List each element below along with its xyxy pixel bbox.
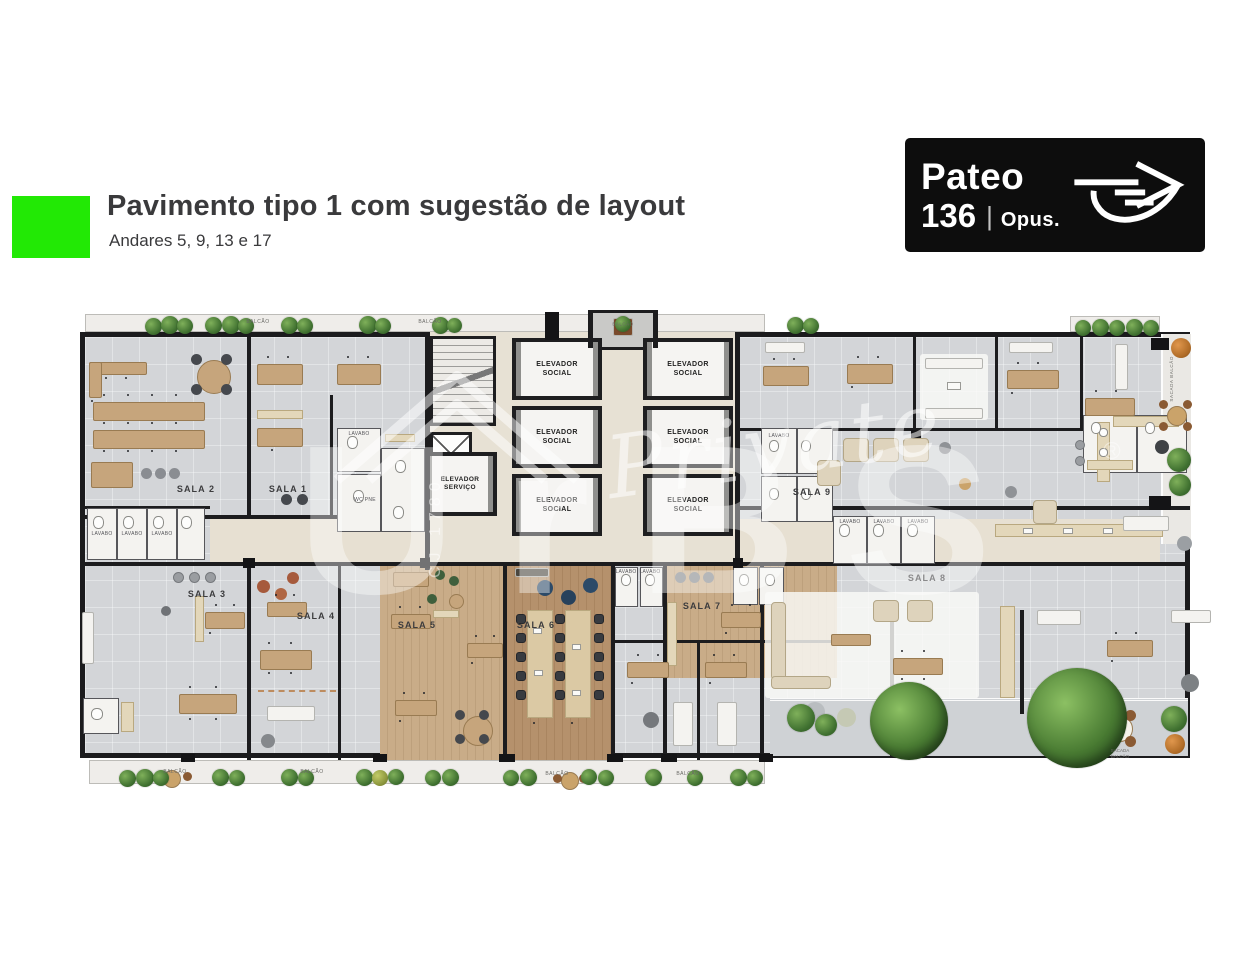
social-elevator-5: ELEVADOR SOCIAL — [643, 406, 733, 468]
desk — [93, 402, 205, 421]
plant — [1075, 320, 1091, 336]
office-chair — [209, 632, 211, 634]
round-table — [463, 716, 493, 746]
wall — [247, 566, 251, 760]
sofa — [771, 602, 786, 680]
room-label-sala-1: SALA 1 — [269, 484, 307, 494]
office-chair — [215, 718, 217, 720]
office-chair — [419, 606, 421, 608]
plant — [787, 317, 804, 334]
lavatory-label: LAVABO — [121, 531, 142, 537]
column — [911, 430, 921, 438]
column — [181, 754, 195, 762]
office-chair — [471, 662, 473, 664]
office-chair — [773, 358, 775, 360]
desk — [260, 650, 312, 670]
office-chair — [901, 650, 903, 652]
table-item — [1063, 528, 1073, 534]
office-chair — [516, 690, 526, 700]
bathroom-cell — [177, 508, 205, 560]
office-chair — [594, 671, 604, 681]
table-item — [947, 382, 961, 390]
office-chair — [571, 722, 573, 724]
pouf — [537, 580, 553, 596]
desk — [831, 634, 871, 646]
office-chair — [103, 422, 105, 424]
wall — [913, 337, 916, 431]
fixture — [801, 440, 811, 452]
office-chair — [103, 394, 105, 396]
office-chair — [516, 671, 526, 681]
column — [499, 754, 515, 762]
chair — [449, 576, 459, 586]
brand-name: Pateo — [921, 158, 1060, 195]
office-chair — [555, 614, 565, 624]
leaf-arrow-icon — [1071, 154, 1189, 236]
office-chair — [175, 422, 177, 424]
column — [243, 558, 255, 568]
office-chair — [1115, 632, 1117, 634]
office-chair — [657, 654, 659, 656]
floor-plan: ELEVADOR SERVIÇO ELEVADOR SOCIAL ELEVADO… — [75, 310, 1195, 790]
lavatory-label: LAVABO — [768, 433, 789, 439]
office-chair — [151, 394, 153, 396]
fixture — [395, 460, 406, 473]
office-chair — [127, 394, 129, 396]
fixture — [153, 516, 164, 529]
column — [420, 558, 430, 568]
wall — [503, 566, 507, 760]
room-label-sala-3: SALA 3 — [188, 589, 226, 599]
chair — [281, 494, 292, 505]
sofa — [771, 676, 831, 689]
office-chair — [267, 356, 269, 358]
elevator-label: ELEVADOR SOCIAL — [658, 496, 717, 514]
room-sala-6-floor — [507, 566, 611, 760]
office-chair — [233, 604, 235, 606]
chair — [455, 734, 465, 744]
table-item — [1023, 528, 1033, 534]
office-chair — [533, 722, 535, 724]
terrace-label-right: SACADA BALCÃO — [1169, 356, 1174, 402]
plant — [1161, 706, 1187, 732]
room-label-sala-2: SALA 2 — [177, 484, 215, 494]
chair — [1125, 736, 1136, 747]
chair — [479, 734, 489, 744]
wall — [330, 395, 333, 519]
plant — [372, 770, 388, 786]
plant — [1143, 320, 1159, 336]
room-label-sala-7: SALA 7 — [683, 601, 721, 611]
wall — [247, 337, 251, 519]
wall — [338, 566, 341, 760]
lavatory-label: LAVABO — [615, 569, 636, 575]
fixture — [91, 708, 103, 720]
office-chair — [1017, 362, 1019, 364]
plant — [136, 769, 154, 787]
office-chair — [857, 356, 859, 358]
brand-divider: | — [986, 203, 993, 229]
desk — [1007, 370, 1059, 389]
chair — [191, 354, 202, 365]
slide: Pavimento tipo 1 com sugestão de layout … — [0, 0, 1248, 960]
pouf — [561, 590, 576, 605]
plant — [442, 769, 459, 786]
cabinet — [82, 612, 94, 664]
room-label-sala-8: SALA 8 — [908, 573, 946, 583]
office-chair — [516, 652, 526, 662]
fixture — [765, 574, 775, 586]
desk — [763, 366, 809, 386]
cabinet — [1037, 610, 1081, 625]
accent-square — [12, 196, 90, 258]
plant — [281, 317, 298, 334]
office-chair — [555, 671, 565, 681]
counter — [257, 410, 303, 419]
plant — [1092, 319, 1109, 336]
tree — [870, 682, 948, 760]
fixture — [769, 488, 779, 500]
counter — [433, 610, 459, 618]
pouf — [261, 734, 275, 748]
office-chair — [731, 604, 733, 606]
terrace-label-bottom: SACADA BALCÃO — [1105, 748, 1135, 761]
office-chair — [175, 394, 177, 396]
bathroom-cell — [337, 474, 381, 532]
desk — [893, 658, 943, 675]
plant — [229, 770, 245, 786]
elevator-label: ELEVADOR SOCIAL — [527, 428, 586, 446]
pouf — [959, 478, 971, 490]
plant — [281, 769, 298, 786]
lavatory-label: LAVABO — [151, 531, 172, 537]
office-chair — [725, 632, 727, 634]
elevator-label: ELEVADOR SOCIAL — [527, 496, 586, 514]
stool — [205, 572, 216, 583]
office-chair — [423, 692, 425, 694]
cabinet — [1171, 610, 1211, 623]
plant — [730, 769, 747, 786]
column — [661, 754, 677, 762]
desk — [467, 643, 503, 658]
sofa — [843, 438, 869, 462]
table-item — [572, 644, 581, 650]
fixture — [873, 524, 884, 537]
fixture — [769, 440, 779, 452]
chair — [427, 594, 437, 604]
stairs — [430, 336, 496, 426]
office-chair — [594, 614, 604, 624]
sofa — [907, 600, 933, 622]
desk — [89, 362, 102, 398]
office-chair — [923, 678, 925, 680]
plant — [1126, 319, 1143, 336]
desk — [337, 364, 381, 385]
pouf — [141, 468, 152, 479]
wall — [425, 332, 430, 570]
chair — [1159, 422, 1168, 431]
desk — [179, 694, 237, 714]
counter — [667, 602, 677, 666]
desk — [1107, 640, 1153, 657]
plant — [1167, 448, 1191, 472]
service-elevator-label: ELEVADOR SERVIÇO — [436, 476, 484, 493]
column — [607, 754, 623, 762]
balcony-label: BALCÃO — [612, 322, 633, 327]
plant — [388, 769, 404, 785]
plant — [1169, 474, 1191, 496]
desk — [627, 662, 669, 678]
stool — [1075, 456, 1085, 466]
table-item — [1103, 528, 1113, 534]
plant — [212, 769, 229, 786]
office-chair — [268, 642, 270, 644]
social-elevator-6: ELEVADOR SOCIAL — [643, 474, 733, 536]
plant — [815, 714, 837, 736]
wall — [995, 337, 998, 431]
fixture — [1099, 448, 1108, 457]
office-chair — [637, 654, 639, 656]
office-chair — [399, 606, 401, 608]
column — [545, 312, 559, 340]
cabinet — [925, 408, 983, 419]
table-item — [534, 670, 543, 676]
pouf — [257, 580, 270, 593]
pouf — [643, 712, 659, 728]
pouf — [161, 606, 171, 616]
chair — [221, 384, 232, 395]
elevator-label: ELEVADOR SOCIAL — [658, 428, 717, 446]
desk — [205, 612, 245, 629]
table-item — [572, 690, 581, 696]
office-chair — [851, 386, 853, 388]
desk — [93, 430, 205, 449]
pouf — [583, 578, 598, 593]
office-chair — [594, 633, 604, 643]
pouf — [939, 442, 951, 454]
column — [1151, 338, 1169, 350]
chair — [1183, 422, 1192, 431]
plant — [520, 769, 537, 786]
office-chair — [1135, 632, 1137, 634]
office-chair — [749, 604, 751, 606]
plant — [803, 318, 819, 334]
fixture — [1145, 422, 1155, 434]
fixture — [347, 436, 358, 449]
pouf — [1005, 486, 1017, 498]
cabinet — [717, 702, 737, 746]
stool — [173, 572, 184, 583]
plant — [119, 770, 136, 787]
cabinet — [267, 706, 315, 721]
plant — [205, 317, 222, 334]
page-subtitle: Andares 5, 9, 13 e 17 — [109, 231, 272, 251]
column — [373, 754, 387, 762]
office-chair — [923, 650, 925, 652]
wc-pne-label: WC PNE — [354, 497, 376, 503]
lavatory-label: LAVABO — [639, 569, 660, 575]
column — [759, 754, 773, 762]
column — [733, 558, 743, 568]
stool — [189, 572, 200, 583]
office-chair — [793, 358, 795, 360]
cabinet — [925, 358, 983, 369]
cabinet — [1123, 516, 1169, 531]
desk — [847, 364, 893, 384]
office-chair — [275, 594, 277, 596]
office-chair — [127, 422, 129, 424]
desk — [721, 612, 761, 628]
lavatory-label: LAVABO — [873, 519, 894, 525]
plant — [297, 318, 313, 334]
sofa — [903, 438, 929, 462]
brand-text: Pateo 136 | Opus. — [921, 158, 1060, 232]
office-chair — [151, 422, 153, 424]
office-chair — [287, 356, 289, 358]
balcony-label: BALCÃO — [545, 771, 568, 777]
lavatory-label: LAVABO — [907, 519, 928, 525]
cabinet — [1009, 342, 1053, 353]
chair — [435, 570, 445, 580]
office-chair — [713, 654, 715, 656]
lavatory-label: LAVABO — [348, 431, 369, 437]
pouf — [287, 572, 299, 584]
office-chair — [293, 594, 295, 596]
fixture — [93, 516, 104, 529]
social-elevator-3: ELEVADOR SOCIAL — [512, 474, 602, 536]
brand-badge: Pateo 136 | Opus. — [905, 138, 1205, 252]
room-label-sala-6: SALA 6 — [517, 620, 555, 630]
office-chair — [516, 633, 526, 643]
sofa — [817, 460, 841, 486]
office-chair — [1037, 362, 1039, 364]
sofa — [1033, 500, 1057, 524]
room-label-sala-5: SALA 5 — [398, 620, 436, 630]
office-chair — [594, 652, 604, 662]
fixture — [123, 516, 134, 529]
plant — [1165, 734, 1185, 754]
office-chair — [189, 686, 191, 688]
wall — [588, 310, 593, 348]
cabinet — [673, 702, 693, 746]
office-chair — [901, 678, 903, 680]
balcony-label: BALCÃO — [676, 771, 699, 777]
sofa — [873, 600, 899, 622]
bathroom-cell — [761, 476, 797, 522]
fixture — [907, 524, 918, 537]
office-chair — [105, 377, 107, 379]
office-chair — [290, 642, 292, 644]
counter — [195, 596, 204, 642]
plant — [747, 770, 763, 786]
sofa — [873, 438, 899, 462]
office-chair — [401, 564, 403, 566]
counter — [1000, 606, 1015, 698]
balcony-label: BALCÃO — [163, 769, 186, 775]
page-title: Pavimento tipo 1 com sugestão de layout — [107, 190, 685, 223]
elevator-label: ELEVADOR SOCIAL — [527, 360, 586, 378]
bathroom-cell — [733, 567, 758, 605]
round-table — [449, 594, 464, 609]
office-chair — [103, 450, 105, 452]
chair — [297, 494, 308, 505]
office-chair — [367, 356, 369, 358]
office-chair — [1011, 392, 1013, 394]
fixture — [739, 574, 749, 586]
office-chair — [151, 450, 153, 452]
brand-company: Opus. — [1001, 210, 1060, 230]
counter — [1087, 460, 1133, 470]
pouf — [1181, 674, 1199, 692]
plant — [447, 318, 462, 333]
plant — [787, 704, 815, 732]
plant — [503, 770, 519, 786]
fixture — [1091, 422, 1101, 434]
plant — [425, 770, 441, 786]
office-chair — [403, 692, 405, 694]
counter — [121, 702, 134, 732]
office-chair — [555, 690, 565, 700]
office-chair — [1115, 390, 1117, 392]
wall — [653, 310, 658, 348]
plant — [356, 769, 373, 786]
office-chair — [127, 450, 129, 452]
plant — [145, 318, 162, 335]
desk — [395, 700, 437, 716]
office-chair — [475, 635, 477, 637]
room-label-sala-4: SALA 4 — [297, 611, 335, 621]
office-chair — [268, 672, 270, 674]
desk — [393, 572, 429, 587]
office-chair — [1111, 660, 1113, 662]
plant — [598, 770, 614, 786]
chair — [1159, 400, 1168, 409]
office-chair — [555, 652, 565, 662]
cabinet — [515, 568, 549, 577]
office-chair — [215, 686, 217, 688]
pouf — [169, 468, 180, 479]
fixture — [621, 574, 631, 586]
plant — [1171, 338, 1191, 358]
desk — [257, 364, 303, 385]
pouf — [1155, 440, 1169, 454]
wall — [697, 643, 700, 760]
office-chair — [594, 690, 604, 700]
office-chair — [215, 604, 217, 606]
plant — [177, 318, 193, 334]
counter — [565, 610, 591, 718]
chair — [455, 710, 465, 720]
office-chair — [290, 672, 292, 674]
office-chair — [271, 449, 273, 451]
chair — [221, 354, 232, 365]
chair — [703, 572, 714, 583]
plant — [375, 318, 391, 334]
fixture — [181, 516, 192, 529]
plant — [581, 769, 597, 785]
office-chair — [175, 450, 177, 452]
plant — [1109, 320, 1125, 336]
fixture — [645, 574, 655, 586]
elevator-label: ELEVADOR SOCIAL — [658, 360, 717, 378]
rug-edge — [258, 690, 336, 692]
lavatory-label: LAVABO — [839, 519, 860, 525]
room-label-sala-9: SALA 9 — [793, 487, 831, 497]
pouf — [155, 468, 166, 479]
pouf — [837, 708, 856, 727]
office-chair — [399, 720, 401, 722]
office-chair — [877, 356, 879, 358]
